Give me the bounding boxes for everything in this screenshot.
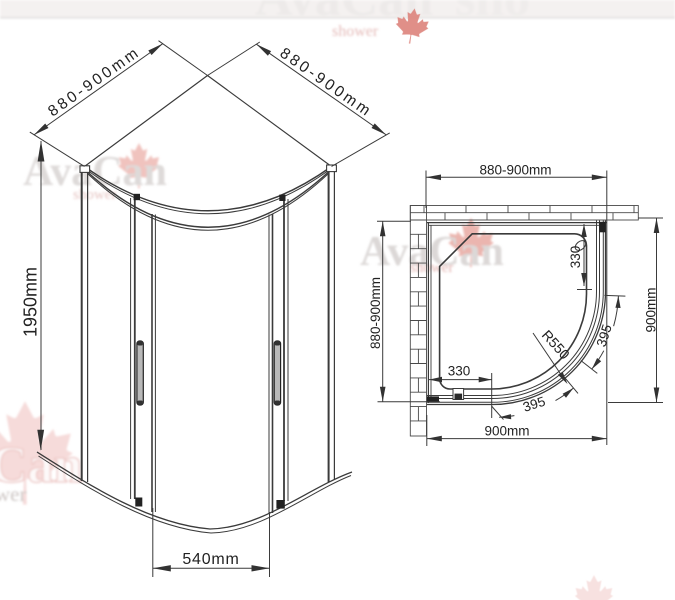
svg-text:shower: shower — [332, 23, 379, 40]
svg-text:900mm: 900mm — [484, 424, 529, 439]
svg-text:880-900mm: 880-900mm — [479, 163, 551, 178]
svg-text:540mm: 540mm — [182, 551, 239, 568]
svg-text:330: 330 — [448, 364, 471, 379]
svg-text:wer: wer — [0, 482, 26, 506]
svg-text:330: 330 — [568, 246, 583, 269]
svg-text:880-900mm: 880-900mm — [368, 277, 383, 349]
svg-text:shower: shower — [73, 187, 116, 203]
svg-text:1950mm: 1950mm — [21, 267, 41, 337]
svg-text:shower: shower — [410, 260, 453, 276]
svg-text:900mm: 900mm — [644, 287, 659, 332]
